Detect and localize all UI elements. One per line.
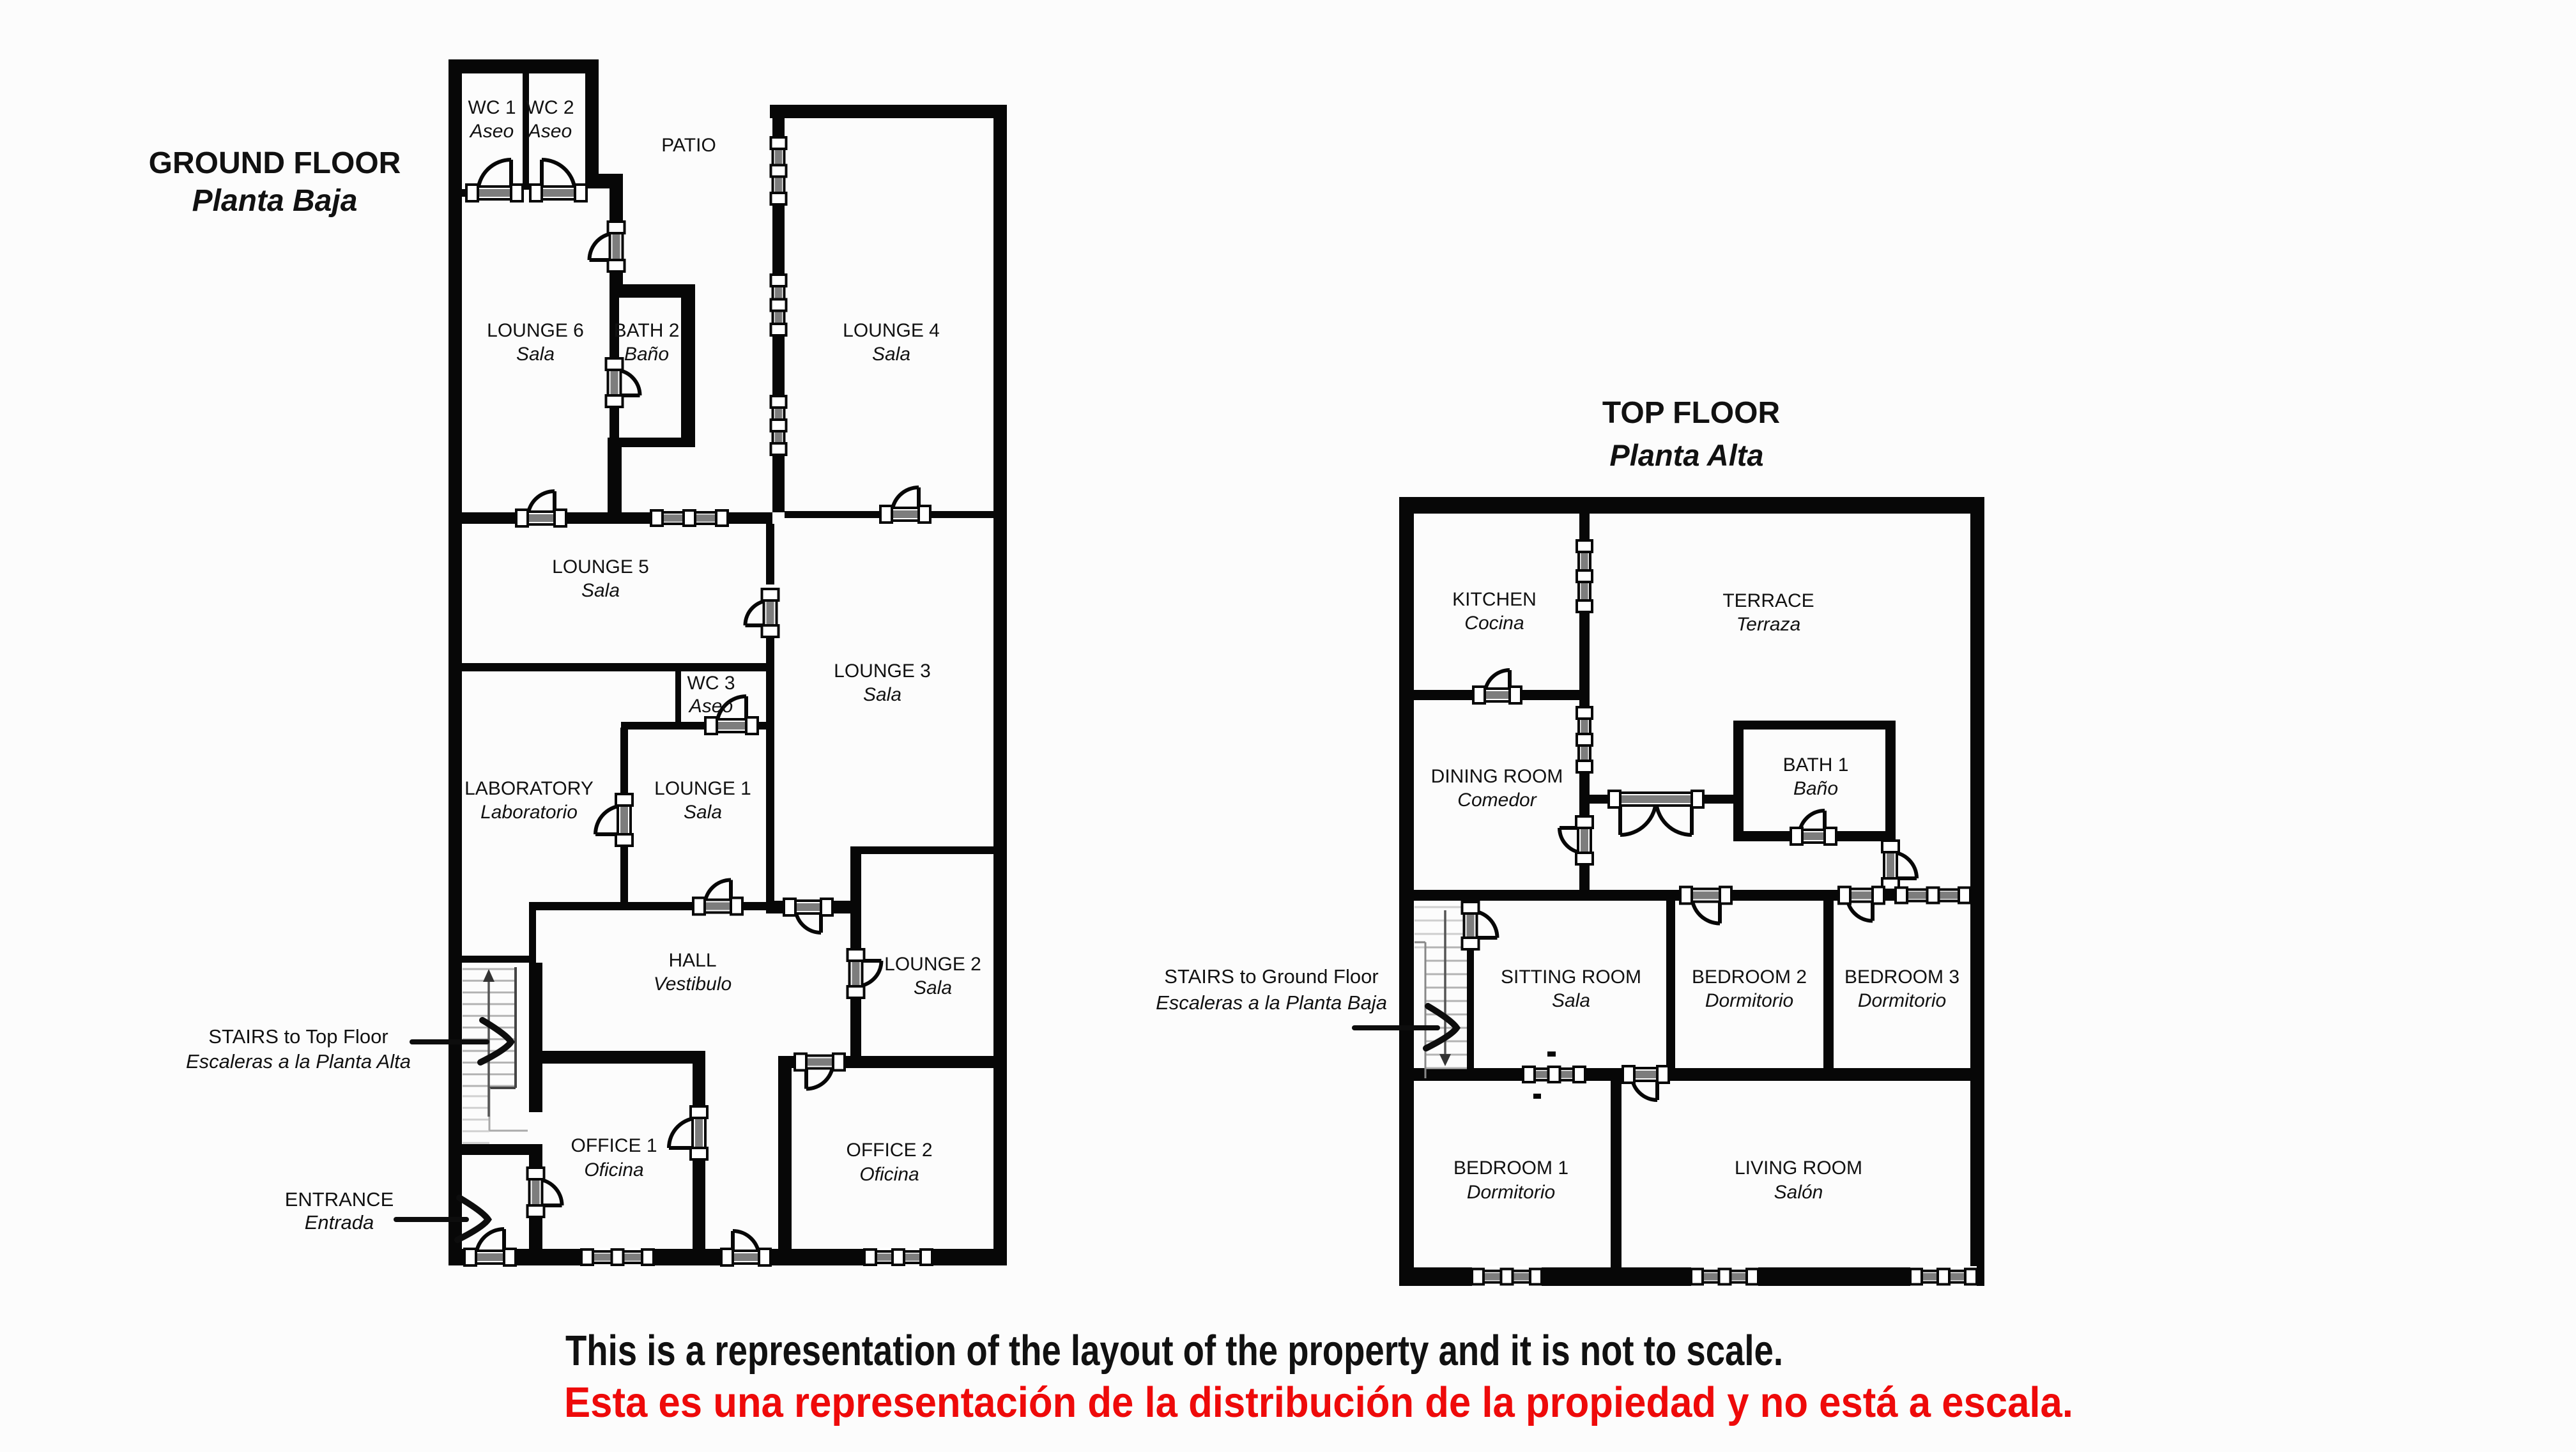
svg-text:LOUNGE 1: LOUNGE 1 <box>654 778 751 799</box>
svg-text:WC 1: WC 1 <box>468 97 516 118</box>
svg-text:Entrada: Entrada <box>305 1211 374 1234</box>
svg-text:LOUNGE 5: LOUNGE 5 <box>552 556 649 577</box>
svg-text:KITCHEN: KITCHEN <box>1452 589 1537 610</box>
svg-text:Baño: Baño <box>1793 778 1838 799</box>
svg-text:Dormitorio: Dormitorio <box>1467 1182 1555 1203</box>
svg-text:BEDROOM 3: BEDROOM 3 <box>1844 967 1959 988</box>
svg-text:OFFICE 1: OFFICE 1 <box>571 1135 657 1156</box>
svg-text:BATH 2: BATH 2 <box>614 320 680 341</box>
svg-text:LOUNGE 2: LOUNGE 2 <box>884 954 981 975</box>
svg-text:TOP FLOOR: TOP FLOOR <box>1602 396 1780 430</box>
svg-text:ENTRANCE: ENTRANCE <box>285 1188 394 1211</box>
svg-text:Sala: Sala <box>914 977 952 998</box>
svg-text:Sala: Sala <box>516 344 555 365</box>
svg-text:Sala: Sala <box>581 580 620 601</box>
svg-text:GROUND FLOOR: GROUND FLOOR <box>149 146 401 180</box>
svg-text:Sala: Sala <box>684 802 722 823</box>
svg-text:Planta Alta: Planta Alta <box>1609 438 1763 472</box>
svg-text:LOUNGE 6: LOUNGE 6 <box>487 320 584 341</box>
svg-text:Cocina: Cocina <box>1464 613 1524 634</box>
svg-text:HALL: HALL <box>668 950 716 971</box>
svg-text:WC 3: WC 3 <box>687 673 735 694</box>
svg-text:Aseo: Aseo <box>527 121 572 142</box>
svg-text:Escaleras a la Planta Alta: Escaleras a la Planta Alta <box>186 1050 411 1073</box>
svg-text:Aseo: Aseo <box>469 121 514 142</box>
svg-text:BEDROOM 1: BEDROOM 1 <box>1453 1158 1568 1179</box>
svg-text:DINING ROOM: DINING ROOM <box>1431 766 1563 787</box>
svg-text:LIVING ROOM: LIVING ROOM <box>1735 1158 1862 1179</box>
svg-text:BEDROOM 2: BEDROOM 2 <box>1692 967 1807 988</box>
svg-text:SITTING ROOM: SITTING ROOM <box>1501 967 1641 988</box>
svg-text:LABORATORY: LABORATORY <box>464 778 594 799</box>
svg-text:Sala: Sala <box>863 684 901 705</box>
svg-text:Salón: Salón <box>1774 1182 1823 1203</box>
svg-text:PATIO: PATIO <box>661 135 716 156</box>
svg-text:Vestibulo: Vestibulo <box>654 974 732 995</box>
svg-text:This is a representation of th: This is a representation of the layout o… <box>565 1327 1783 1375</box>
svg-text:WC 2: WC 2 <box>526 97 574 118</box>
svg-text:Esta es una representación de: Esta es una representación de la distrib… <box>564 1379 2073 1426</box>
svg-text:Comedor: Comedor <box>1457 790 1537 811</box>
svg-text:STAIRS to Ground Floor: STAIRS to Ground Floor <box>1164 965 1378 988</box>
svg-text:Dormitorio: Dormitorio <box>1705 990 1793 1011</box>
svg-text:OFFICE 2: OFFICE 2 <box>846 1140 932 1161</box>
svg-text:Oficina: Oficina <box>584 1159 643 1181</box>
svg-text:Laboratorio: Laboratorio <box>480 802 578 823</box>
svg-text:Escaleras a la Planta Baja: Escaleras a la Planta Baja <box>1156 991 1387 1014</box>
svg-text:Terraza: Terraza <box>1736 614 1801 635</box>
svg-text:LOUNGE 3: LOUNGE 3 <box>834 661 931 682</box>
svg-text:Baño: Baño <box>624 344 669 365</box>
svg-text:Sala: Sala <box>872 344 910 365</box>
svg-text:Oficina: Oficina <box>859 1164 919 1185</box>
svg-text:STAIRS to Top Floor: STAIRS to Top Floor <box>208 1025 388 1048</box>
svg-text:Sala: Sala <box>1552 990 1590 1011</box>
svg-text:Aseo: Aseo <box>688 696 733 717</box>
svg-text:Planta Baja: Planta Baja <box>192 184 358 218</box>
svg-text:BATH 1: BATH 1 <box>1783 754 1849 776</box>
svg-text:TERRACE: TERRACE <box>1722 590 1814 611</box>
svg-text:Dormitorio: Dormitorio <box>1858 990 1946 1011</box>
svg-text:LOUNGE 4: LOUNGE 4 <box>843 320 940 341</box>
